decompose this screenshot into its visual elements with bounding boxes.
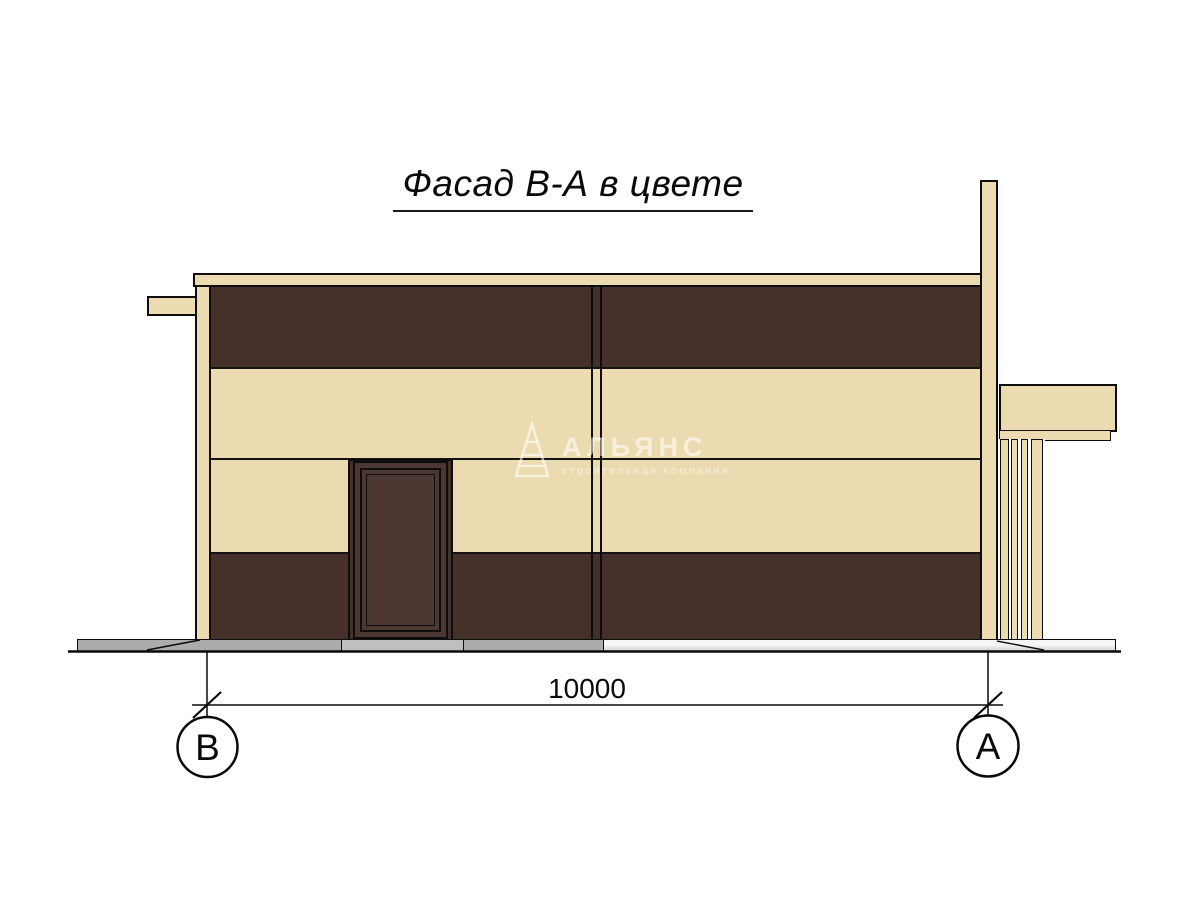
annotation-layer: 10000 В А bbox=[0, 0, 1200, 900]
axis-label-B: В bbox=[195, 727, 220, 768]
ramp-right bbox=[997, 641, 1044, 650]
ramp-left bbox=[147, 640, 200, 650]
axis-label-A: А bbox=[976, 726, 1001, 767]
dimension-value: 10000 bbox=[548, 673, 626, 704]
facade-drawing: Фасад В-А в цвете АЛЬЯНС строительная ко… bbox=[0, 0, 1200, 900]
